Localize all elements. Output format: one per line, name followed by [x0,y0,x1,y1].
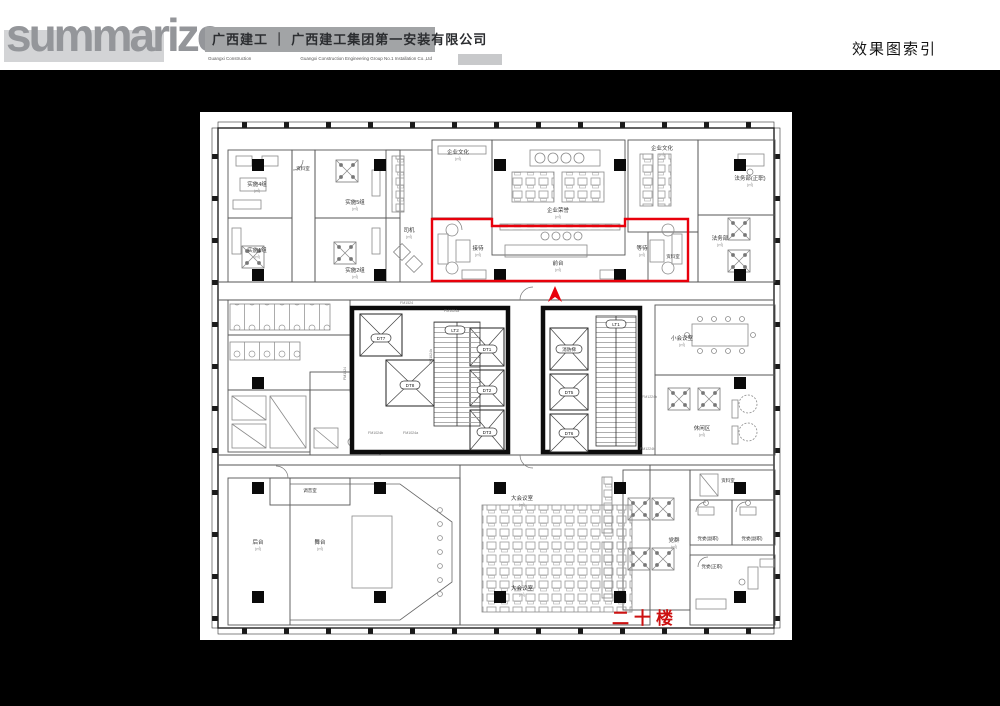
floor-plan-sheet: DT7 DT8 LT2 DT1 DT2 DT3 消防梯 DT5 DT6 LT1 … [200,112,792,640]
room-label: 资料室 [666,253,680,260]
room-label: 企业文化 [651,144,674,152]
room-label: 大会议室 [511,494,534,502]
company-name-cn: 广西建工 ｜ 广西建工集团第一安装有限公司 [205,27,435,52]
svg-text:(㎡): (㎡) [717,242,724,247]
svg-text:(㎡): (㎡) [352,206,359,211]
company-name-en: Guangxi Construction Guangxi Constructio… [205,52,435,64]
svg-text:(㎡): (㎡) [679,342,686,347]
svg-text:(㎡): (㎡) [352,274,359,279]
room-label: 接待 [472,244,484,252]
svg-text:(㎡): (㎡) [406,234,413,239]
door-tag: FM1024b [368,431,383,435]
svg-text:(㎡): (㎡) [519,592,526,597]
room-label: 党委(正职) [702,563,723,570]
company-name-en-short: Guangxi Construction [208,56,251,61]
svg-text:(㎡): (㎡) [671,544,678,549]
svg-text:(㎡): (㎡) [555,267,562,272]
room-label: 实施5组 [345,198,365,206]
svg-text:(㎡): (㎡) [475,252,482,257]
elevator-label: DT2 [483,388,492,393]
room-label: 舞台 [314,538,326,546]
svg-text:(㎡): (㎡) [639,252,646,257]
svg-text:(㎡): (㎡) [659,152,666,157]
company-name-en-full: Guangxi Construction Engineering Group N… [300,56,432,61]
room-label: 小会议室 [671,334,694,342]
elevator-label: DT8 [406,383,415,388]
door-tag: FM1024a [444,309,459,313]
page-title: 效果图索引 [852,38,937,59]
room-label: 党群 [668,536,680,544]
door-tag: FM1524 [343,367,347,380]
elevator-label: DT3 [483,430,492,435]
svg-text:(㎡): (㎡) [555,214,562,219]
svg-text:(㎡): (㎡) [254,254,261,259]
sheet-header: summarize 广西建工 ｜ 广西建工集团第一安装有限公司 Guangxi … [0,0,1000,70]
room-label: 党委(副职) [698,535,719,542]
door-tag: FM1024a [403,431,418,435]
elevator-label: DT6 [565,431,574,436]
company-logo: summarize [6,8,219,62]
svg-text:(㎡): (㎡) [519,502,526,507]
door-tag: FM1224b [640,447,655,451]
room-label: 企业文化 [447,148,470,156]
room-label: 实施4组 [247,180,267,188]
svg-text:(㎡): (㎡) [317,546,324,551]
room-label: 企业荣誉 [547,206,570,214]
room-label: 大会议室 [511,584,534,592]
svg-text:(㎡): (㎡) [455,156,462,161]
header-decoration [458,54,502,65]
door-tag: FM1524 [400,301,413,305]
drawing-background: DT7 DT8 LT2 DT1 DT2 DT3 消防梯 DT5 DT6 LT1 … [0,70,1000,706]
stair-label: LT1 [612,322,620,327]
room-label: 党委(副职) [742,535,763,542]
door-tag: FM1224b [642,395,657,399]
svg-text:(㎡): (㎡) [747,182,754,187]
room-label: 法务部 [712,234,729,242]
floor-plan-svg: DT7 DT8 LT2 DT1 DT2 DT3 消防梯 DT5 DT6 LT1 … [200,112,792,640]
elevator-label: DT5 [565,390,574,395]
svg-text:(㎡): (㎡) [255,546,262,551]
stair-label: LT2 [451,328,459,333]
company-title-bar: 广西建工 ｜ 广西建工集团第一安装有限公司 Guangxi Constructi… [205,27,435,64]
svg-text:(㎡): (㎡) [699,432,706,437]
room-label: 实施2组 [345,266,365,274]
floor-number-label: 二十楼 [612,604,678,629]
room-label: 资料室 [296,165,310,172]
svg-text:(㎡): (㎡) [254,188,261,193]
room-label: 法务部(正职) [734,174,765,182]
door-tag: FM1024b [429,349,433,364]
room-label: 调音室 [303,487,317,494]
elevator-core: DT7 DT8 LT2 DT1 DT2 DT3 消防梯 DT5 DT6 LT1 … [343,301,657,452]
elevator-label: 消防梯 [562,346,576,353]
room-label: 前台 [552,259,564,267]
room-label: 休闲区 [694,424,711,432]
room-label: 等待 [636,244,648,252]
room-label: 后台 [252,538,264,546]
room-label: 资料室 [721,477,735,484]
elevator-label: DT7 [377,336,386,341]
room-label: 实施1组 [247,246,267,254]
elevator-label: DT1 [483,347,492,352]
room-label: 司机 [403,226,415,234]
